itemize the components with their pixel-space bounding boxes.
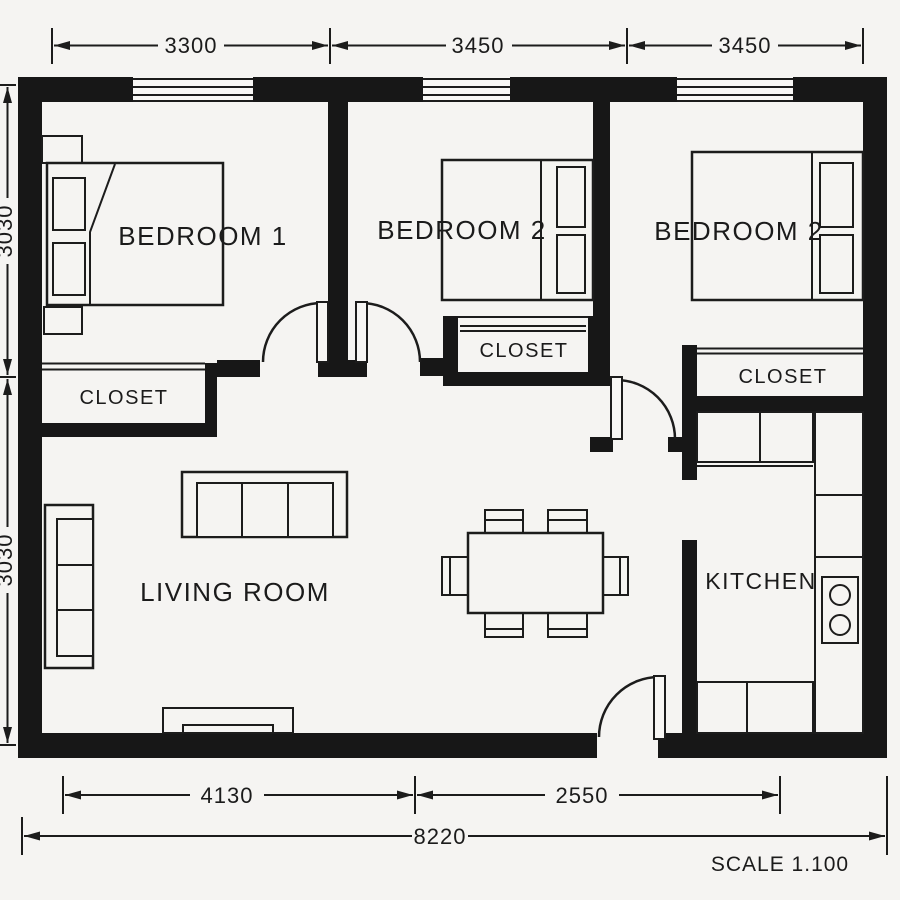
dim-value-top-1: 3300 [165,33,218,58]
wall-right [863,77,887,758]
nightstand [42,136,82,163]
dim-arrow [629,41,645,50]
door-arc-bedroom2 [361,303,420,362]
stove-icon [822,577,858,643]
room-label-closet1: CLOSET [79,387,168,409]
kitchen-counter-column [815,412,863,733]
chair [485,613,523,637]
pillow [53,243,85,295]
wall-closet2-bottom [443,372,610,386]
door-arc-bedroom1 [263,303,322,362]
dim-arrow [3,727,12,743]
chair [548,613,587,637]
dining-table [468,533,603,613]
window-bedroom3 [677,77,793,102]
floor-plan-drawing: BEDROOM 1 BEDROOM 2 BEDROOM 2 LIVING ROO… [0,0,900,900]
room-label-bedroom1: BEDROOM 1 [118,221,288,251]
window-glass [423,77,510,102]
door-arc-hallway [616,380,675,439]
room-label-kitchen: KITCHEN [705,568,816,594]
windows [133,77,793,102]
kitchen-counter [760,412,813,462]
nightstand [44,307,82,334]
window-glass [677,77,793,102]
wall-halldoor-stub-right [668,437,684,452]
dim-arrow [3,87,12,103]
wall-hall-left [217,360,260,377]
wall-left [18,77,42,758]
pillow [53,178,85,230]
couch-seat [57,519,93,656]
dimension-left: 3030 3030 [0,85,17,745]
dim-value-left-1: 3030 [0,205,17,258]
scale-note: SCALE 1.100 [711,853,849,876]
dim-value-top-2: 3450 [452,33,505,58]
wall-bedroom2-bedroom3 [593,100,610,322]
dim-arrow [609,41,625,50]
dim-value-total-width: 8220 [414,824,467,849]
dim-arrow [312,41,328,50]
door-leaf-hallway [611,377,622,439]
room-label-bedroom2: BEDROOM 2 [377,215,547,245]
dim-arrow [24,832,40,841]
sofa-seat [197,483,333,537]
dim-arrow [65,791,81,800]
chair [548,510,587,533]
tv-screen [183,725,273,733]
kitchen-counter [747,682,813,733]
wall-kitchen-upper [682,345,697,480]
dim-arrow [762,791,778,800]
kitchen-counter [697,412,760,462]
window-bedroom2 [423,77,510,102]
living-room-furniture [45,472,628,733]
dim-arrow [869,832,885,841]
chair [603,557,628,595]
wall-bedroom2-doorstub [420,358,445,376]
pillow [820,163,853,227]
dim-arrow [845,41,861,50]
dim-arrow [397,791,413,800]
window-glass [133,77,253,102]
dim-arrow [3,379,12,395]
dimension-top: 3300 3450 3450 [52,28,863,64]
dim-value-top-3: 3450 [719,33,772,58]
entry-opening [597,732,658,759]
floor-plan-page: BEDROOM 1 BEDROOM 2 BEDROOM 2 LIVING ROO… [0,0,900,900]
dim-arrow [54,41,70,50]
door-leaf-entry [654,676,665,739]
wall-bedroom1-bedroom2 [328,100,348,365]
room-label-living: LIVING ROOM [140,577,330,607]
dim-arrow [332,41,348,50]
room-label-closet2: CLOSET [479,340,568,362]
wall-closet1-bottom [18,423,217,437]
dim-value-bottom-2: 2550 [556,783,609,808]
door-leaf-bedroom1 [317,302,328,362]
pillow [557,167,585,227]
pillow [820,235,853,293]
door-leaf-bedroom2 [356,302,367,362]
window-bedroom1 [133,77,253,102]
wall-closet3-bottom [682,396,887,412]
pillow [557,235,585,293]
wall-bottom [18,733,887,758]
kitchen-counter [697,682,747,733]
dim-arrow [3,359,12,375]
dim-value-left-2: 3030 [0,534,17,587]
dim-value-bottom-1: 4130 [201,783,254,808]
chair [442,557,468,595]
room-label-bedroom3: BEDROOM 2 [654,216,824,246]
wall-closet2-right [588,316,610,386]
chair [485,510,523,533]
wall-kitchen-lower [682,540,697,758]
room-label-closet3: CLOSET [738,366,827,388]
door-arc-entry [599,677,659,737]
wall-halldoor-stub-left [590,437,613,452]
dimension-bottom: 4130 2550 8220 [22,776,887,855]
dim-arrow [417,791,433,800]
